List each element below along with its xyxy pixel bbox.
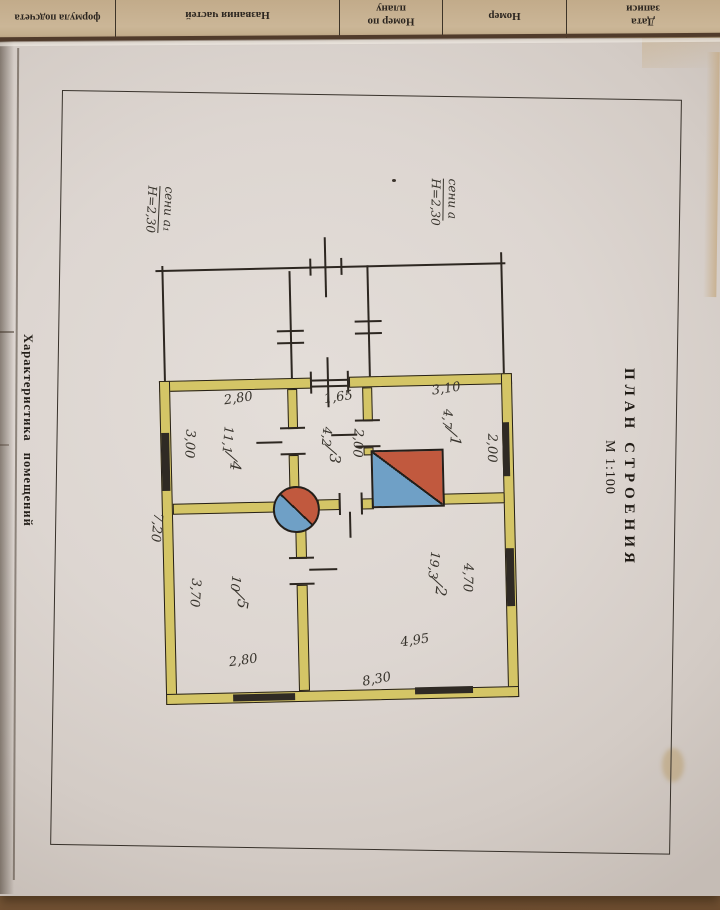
door-jamb-tick — [280, 427, 305, 430]
window-right-room2 — [506, 548, 515, 606]
door-jamb-tick — [290, 583, 315, 586]
dim-room4-top: 2,80 — [216, 388, 262, 409]
door-jamb-tick — [355, 332, 382, 335]
wall-room4-hall-upper — [287, 389, 298, 429]
window-left-room4 — [161, 433, 170, 491]
entrance-threshold-line — [311, 379, 349, 382]
door-jamb-tick — [355, 320, 382, 323]
room1-label: 4,7 / 1 — [440, 400, 463, 453]
door-jamb-tick — [339, 493, 341, 515]
porch-left-wall-line — [161, 266, 166, 383]
room2-label: 19,3 / 2 — [426, 546, 451, 600]
room-number: 3 — [326, 453, 345, 464]
door-jamb-tick — [310, 372, 312, 394]
door-jamb-tick — [281, 453, 306, 456]
wall-room5-room2-upper — [295, 529, 307, 559]
window-bottom-room5 — [233, 693, 295, 701]
room5-label: 10 / 5 — [226, 565, 253, 619]
door-jamb-tick — [340, 258, 342, 275]
room-number: 5 — [233, 598, 252, 610]
door-leaf-line — [349, 512, 352, 538]
door-leaf-line — [256, 441, 282, 444]
window-bottom-room2 — [415, 686, 473, 694]
room-number: 1 — [447, 435, 466, 446]
entrance-threshold-line — [311, 385, 349, 388]
wall-room1-room2-divider — [444, 492, 505, 504]
room-number: 2 — [432, 586, 451, 598]
porch-height: Н=2,30 — [427, 178, 443, 264]
door-leaf-line — [309, 568, 337, 571]
dim-room5-bottom: 2,80 — [220, 650, 266, 671]
floor-plan-drawing: сени а₁ Н=2,30 сени а Н=2,30 11,1 / 4 4,… — [0, 0, 720, 910]
dim-room2-side: 4,70 — [459, 555, 475, 599]
wall-hall-room1-upper — [362, 387, 373, 421]
dim-room5-side: 3,70 — [186, 570, 204, 615]
dim-room1-side: 2,00 — [484, 426, 500, 470]
room4-label: 11,1 / 4 — [221, 421, 244, 474]
porch-right-wall-line — [500, 252, 505, 375]
round-stove-symbol — [272, 485, 320, 533]
dim-hall-side: 2,00 — [349, 421, 366, 466]
door-jamb-tick — [277, 330, 304, 333]
wall-room5-room2-lower — [297, 585, 310, 691]
masonry-stove-symbol — [371, 449, 445, 509]
porch-partition-line — [288, 271, 292, 379]
room3-label: 4,2 / 3 — [320, 418, 343, 471]
porch-name: сени а₁ — [157, 186, 176, 234]
porch-note-right: сени а Н=2,30 — [427, 178, 460, 264]
window-right-room1 — [502, 422, 510, 476]
door-jamb-tick — [309, 259, 311, 276]
room-number: 4 — [227, 460, 246, 471]
door-jamb-tick — [361, 492, 363, 514]
door-jamb-tick — [289, 557, 314, 560]
wall-hall-bottom-left — [318, 499, 340, 510]
dim-room2-bottom: 4,95 — [392, 630, 438, 651]
porch-note-left: сени а₁ Н=2,30 — [140, 185, 176, 272]
wall-room4-room5-divider — [173, 501, 277, 514]
porch-height: Н=2,30 — [140, 185, 159, 272]
document-photo: формула подсчета Названия частей Номер п… — [0, 0, 720, 910]
dim-room4-side: 3,00 — [181, 422, 198, 467]
dim-hall-top: 1,65 — [316, 387, 362, 408]
dim-bottom-total: 8,30 — [354, 668, 400, 691]
door-jamb-tick — [277, 342, 304, 345]
porch-name: сени а — [442, 179, 460, 222]
